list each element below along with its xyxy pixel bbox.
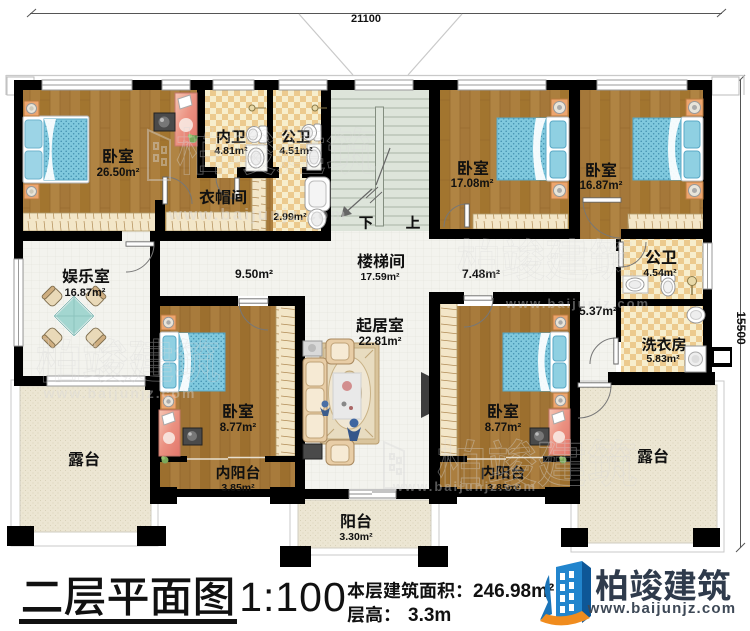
svg-text:246.98m²: 246.98m² xyxy=(473,581,554,602)
svg-text:www.baijunjz.com: www.baijunjz.com xyxy=(43,385,197,401)
svg-text:17.59m²: 17.59m² xyxy=(360,271,400,283)
svg-text:3.85m²: 3.85m² xyxy=(221,482,255,494)
svg-text:www.baijunjz.com: www.baijunjz.com xyxy=(505,296,650,311)
svg-text:www.baijunjz.com: www.baijunjz.com xyxy=(168,205,348,224)
svg-text:26.50m²: 26.50m² xyxy=(97,167,140,179)
svg-text:8.77m²: 8.77m² xyxy=(220,422,257,434)
svg-text:www.baijunjz.com: www.baijunjz.com xyxy=(392,479,537,494)
svg-text:5.83m²: 5.83m² xyxy=(646,353,680,365)
svg-text:3.30m²: 3.30m² xyxy=(339,531,373,543)
svg-text:22.81m²: 22.81m² xyxy=(359,336,402,348)
svg-text:16.87m²: 16.87m² xyxy=(65,287,106,299)
svg-text:16.87m²: 16.87m² xyxy=(580,180,623,192)
svg-text:4.54m²: 4.54m² xyxy=(643,267,677,279)
svg-text:17.08m²: 17.08m² xyxy=(451,178,494,190)
svg-text:3.3m: 3.3m xyxy=(408,605,451,626)
svg-text:www.baijunjz.com: www.baijunjz.com xyxy=(587,600,737,617)
svg-text:21100: 21100 xyxy=(351,13,381,25)
svg-text:15500: 15500 xyxy=(734,311,748,345)
svg-text:8.77m²: 8.77m² xyxy=(485,422,522,434)
svg-text:1:100: 1:100 xyxy=(239,574,347,620)
svg-text:9.50m²: 9.50m² xyxy=(235,267,273,281)
